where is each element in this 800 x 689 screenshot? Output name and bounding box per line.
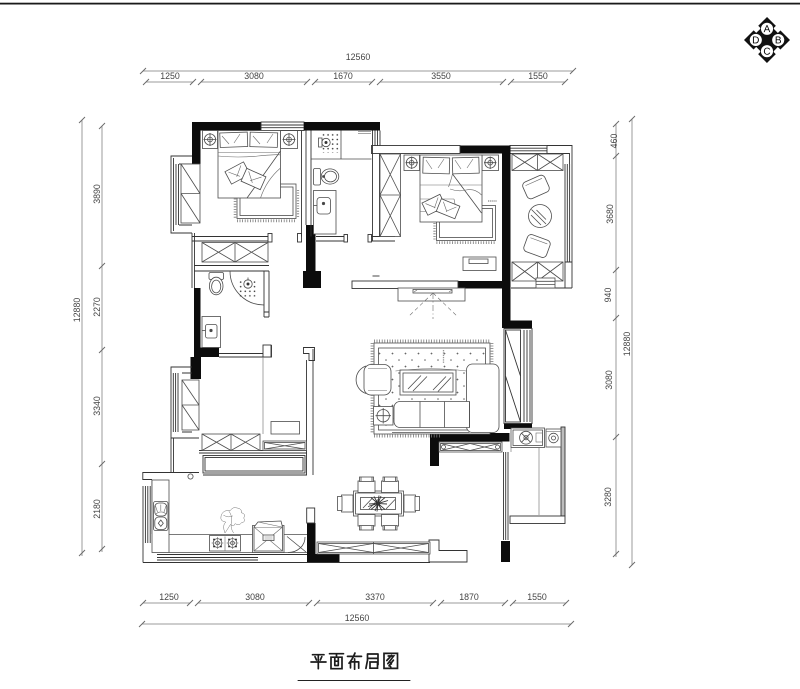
svg-text:12880: 12880	[72, 298, 82, 323]
svg-text:3890: 3890	[92, 184, 102, 204]
svg-text:460: 460	[609, 134, 619, 149]
svg-text:D: D	[752, 35, 759, 46]
svg-text:12880: 12880	[622, 332, 632, 357]
svg-text:3340: 3340	[92, 396, 102, 416]
svg-text:3680: 3680	[605, 204, 615, 224]
svg-text:1550: 1550	[528, 71, 548, 81]
svg-text:12560: 12560	[346, 52, 371, 62]
svg-text:1870: 1870	[459, 592, 479, 602]
svg-text:3080: 3080	[245, 592, 265, 602]
svg-text:3080: 3080	[244, 71, 264, 81]
svg-text:3080: 3080	[604, 370, 614, 390]
svg-text:1670: 1670	[333, 71, 353, 81]
svg-text:1550: 1550	[527, 592, 547, 602]
svg-text:C: C	[763, 47, 770, 58]
svg-text:A: A	[764, 24, 771, 35]
svg-text:3280: 3280	[603, 487, 613, 507]
svg-text:3370: 3370	[365, 592, 385, 602]
svg-text:2270: 2270	[92, 297, 102, 317]
svg-text:B: B	[775, 35, 782, 46]
svg-text:2180: 2180	[92, 499, 102, 519]
svg-text:1250: 1250	[160, 71, 180, 81]
svg-text:3550: 3550	[431, 71, 451, 81]
svg-text:12560: 12560	[345, 613, 370, 623]
svg-text:940: 940	[603, 288, 613, 303]
svg-text:1250: 1250	[159, 592, 179, 602]
